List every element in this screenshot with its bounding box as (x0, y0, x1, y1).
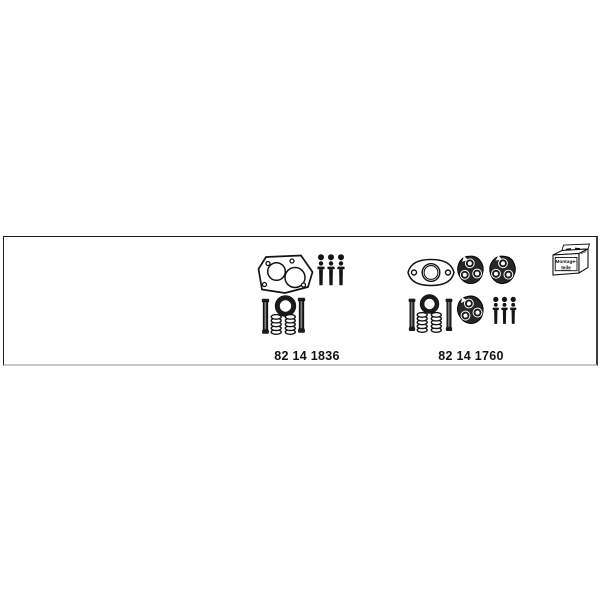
oval-flange-gasket-icon (406, 257, 456, 288)
nut-bolt-set-icon (315, 254, 347, 287)
three-hole-flange-icon (456, 254, 486, 287)
parts-catalog-image: 82 14 1836 (0, 0, 600, 600)
two-port-flange-gasket-icon (255, 252, 317, 297)
three-hole-flange-icon (488, 254, 517, 286)
mounting-kits-panel: 82 14 1836 (3, 236, 598, 366)
mounting-parts-box-label-line2: teile (561, 265, 571, 271)
mounting-parts-box-label-line1: Montage- (555, 259, 577, 265)
stud-bolt-icon (443, 297, 455, 333)
part-number-label: 82 14 1760 (416, 349, 526, 363)
coil-spring-icon (416, 311, 443, 334)
coil-spring-icon (270, 314, 297, 335)
mounting-parts-box-icon: Montage- teile (548, 242, 591, 283)
nut-bolt-set-icon (491, 293, 518, 329)
three-hole-flange-icon (454, 291, 488, 329)
part-number-label: 82 14 1836 (252, 349, 362, 363)
